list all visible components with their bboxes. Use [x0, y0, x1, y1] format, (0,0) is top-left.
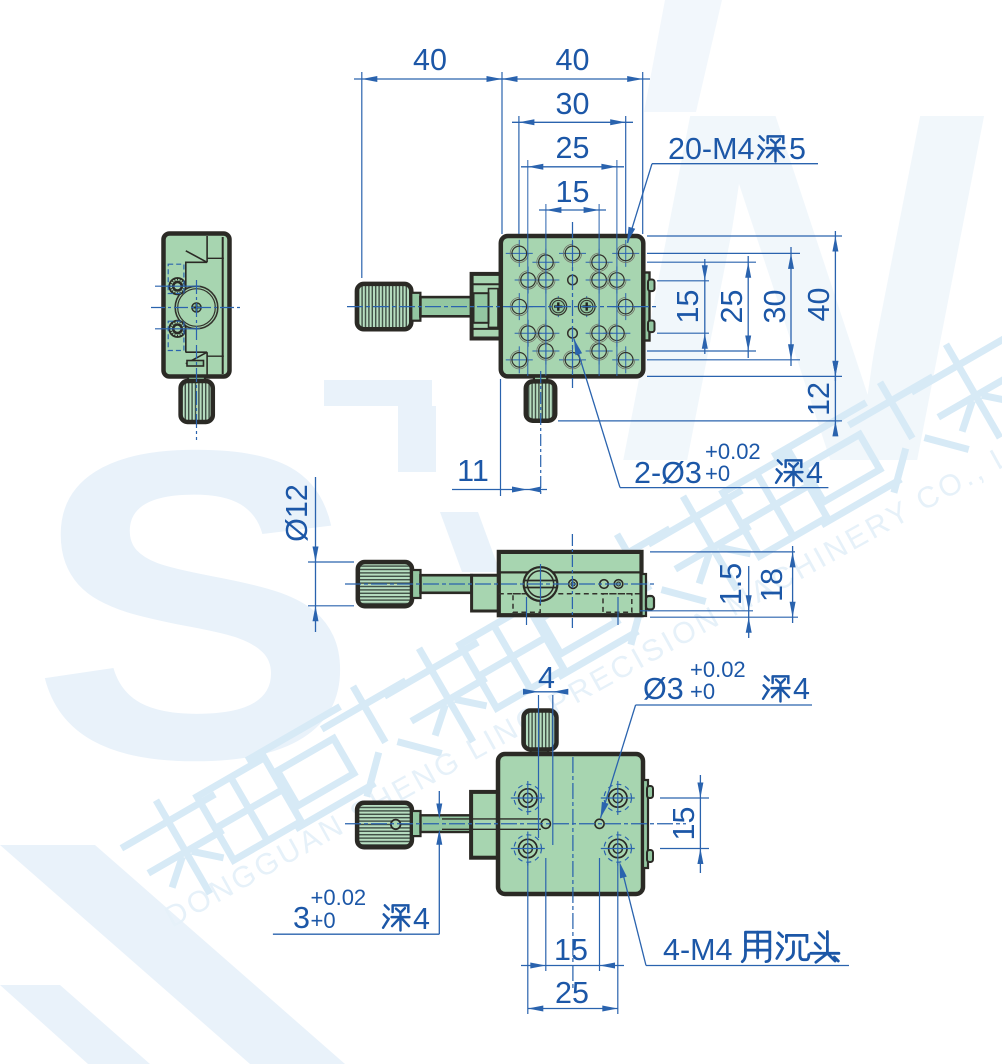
svg-text:5: 5 — [789, 132, 806, 166]
svg-text:25: 25 — [556, 131, 590, 165]
svg-text:30: 30 — [556, 87, 590, 121]
svg-text:4: 4 — [538, 661, 555, 695]
svg-text:40: 40 — [802, 288, 836, 322]
svg-text:4: 4 — [413, 902, 430, 936]
svg-text:Ø3: Ø3 — [643, 672, 684, 706]
svg-text:15: 15 — [667, 807, 701, 841]
svg-text:20-M4: 20-M4 — [668, 132, 754, 166]
svg-text:30: 30 — [758, 290, 792, 324]
svg-text:12: 12 — [802, 382, 836, 416]
svg-text:3: 3 — [293, 901, 310, 935]
svg-text:+0.02: +0.02 — [311, 885, 367, 910]
svg-text:15: 15 — [554, 933, 588, 967]
svg-text:40: 40 — [556, 43, 590, 77]
svg-text:4: 4 — [793, 672, 810, 706]
svg-text:S: S — [31, 359, 360, 851]
svg-text:40: 40 — [413, 43, 447, 77]
svg-text:25: 25 — [715, 290, 749, 324]
svg-text:15: 15 — [556, 175, 590, 209]
svg-text:1.5: 1.5 — [714, 563, 748, 605]
svg-text:11: 11 — [457, 454, 489, 488]
svg-text:+0: +0 — [705, 461, 730, 486]
svg-text:Ø12: Ø12 — [280, 484, 314, 542]
svg-text:+0: +0 — [311, 908, 336, 933]
svg-text:25: 25 — [555, 976, 589, 1010]
svg-text:4-M4: 4-M4 — [663, 933, 733, 967]
svg-text:18: 18 — [755, 568, 789, 602]
svg-text:4: 4 — [806, 456, 823, 490]
svg-text:2-Ø3: 2-Ø3 — [634, 456, 702, 490]
svg-text:15: 15 — [671, 290, 705, 324]
svg-text:+0: +0 — [690, 679, 715, 704]
